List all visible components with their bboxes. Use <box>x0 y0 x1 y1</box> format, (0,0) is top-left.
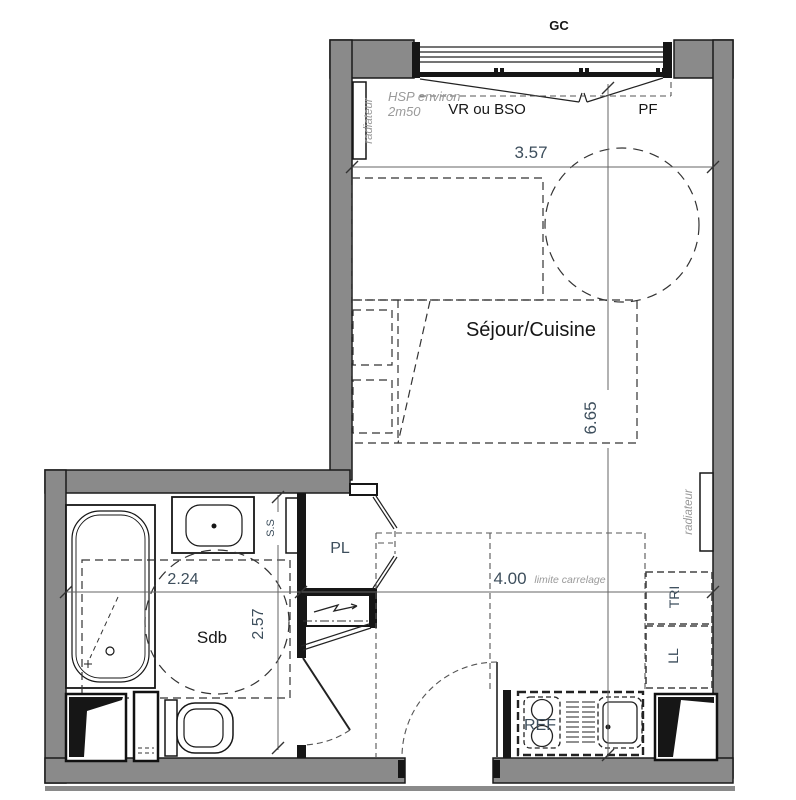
partition-bathroom-stub <box>297 745 306 758</box>
label-closet: PL <box>330 540 350 557</box>
bathroom-door-swing <box>303 730 350 745</box>
wall-left-upper <box>330 40 352 480</box>
window-mullion-marks <box>494 68 666 72</box>
bed-pillow-1 <box>353 310 392 365</box>
entry-door-swing <box>402 662 497 757</box>
drainer-lines <box>566 702 595 742</box>
entry-door-stub-right <box>493 760 500 778</box>
dim-bathroom-depth: 2.57 <box>250 608 267 639</box>
label-fridge: REF <box>524 717 556 734</box>
partition-bathroom <box>297 493 306 658</box>
facade-line <box>45 786 735 791</box>
closet-folding-door-dashes <box>378 531 395 554</box>
entry-door-stub-left <box>398 760 405 778</box>
dimension-lines <box>60 82 719 761</box>
label-bathroom: Sdb <box>197 628 227 647</box>
bed-pillow-2 <box>353 380 392 433</box>
bathroom-door-leaf <box>303 658 350 730</box>
closet-lintel <box>350 484 377 495</box>
dim-lower-width: 4.00 <box>493 569 526 588</box>
window-sill <box>412 72 672 77</box>
doors <box>303 658 497 757</box>
toilet-bowl-inner <box>184 709 223 747</box>
floor-plan: GC HSP environ 2m50 VR ou BSO PF radiate… <box>0 0 796 800</box>
electrical-panel-icon <box>314 604 357 612</box>
closet-and-niche <box>301 496 397 650</box>
kitchen-wall-stub <box>503 690 511 758</box>
wall-right <box>713 40 733 778</box>
window-glazing-lines <box>420 47 663 62</box>
interior-partitions <box>297 493 511 778</box>
label-ceiling-height-2: 2m50 <box>387 104 421 119</box>
wall-bottom-right <box>493 758 733 783</box>
radiator-right <box>700 473 713 551</box>
duct-column <box>134 692 158 761</box>
label-guardrail: GC <box>549 18 569 33</box>
label-sorting-bin: TRI <box>666 586 682 609</box>
label-radiator-left: radiateur <box>363 97 375 144</box>
dim-living-width: 3.57 <box>514 143 547 162</box>
basin-faucet-dot <box>212 524 217 529</box>
dim-bathroom-width: 2.24 <box>167 571 198 588</box>
dim-living-depth: 6.65 <box>581 401 600 434</box>
text-labels: GC HSP environ 2m50 VR ou BSO PF radiate… <box>167 18 695 734</box>
toilet-tank <box>165 700 177 756</box>
label-shutter: VR ou BSO <box>448 101 526 118</box>
dimension-ticks <box>60 82 719 761</box>
living-room-furniture <box>352 148 699 443</box>
furniture-zone-upper <box>352 178 543 300</box>
label-living-kitchen: Séjour/Cuisine <box>466 319 596 341</box>
label-tile-limit: limite carrelage <box>534 574 605 586</box>
bed-fold-lines <box>398 300 430 443</box>
bathtub-drain <box>106 647 114 655</box>
label-washing-machine: LL <box>665 648 681 664</box>
wall-left-lower <box>45 470 66 783</box>
niche-panel-door <box>301 624 371 650</box>
closet-folding-door <box>373 496 397 589</box>
label-towel-rail: S.S <box>265 519 277 537</box>
living-turning-circle <box>545 148 699 302</box>
label-radiator-right: radiateur <box>683 488 695 535</box>
wall-bathroom-top <box>45 470 350 493</box>
label-fixed-window: PF <box>638 101 657 118</box>
